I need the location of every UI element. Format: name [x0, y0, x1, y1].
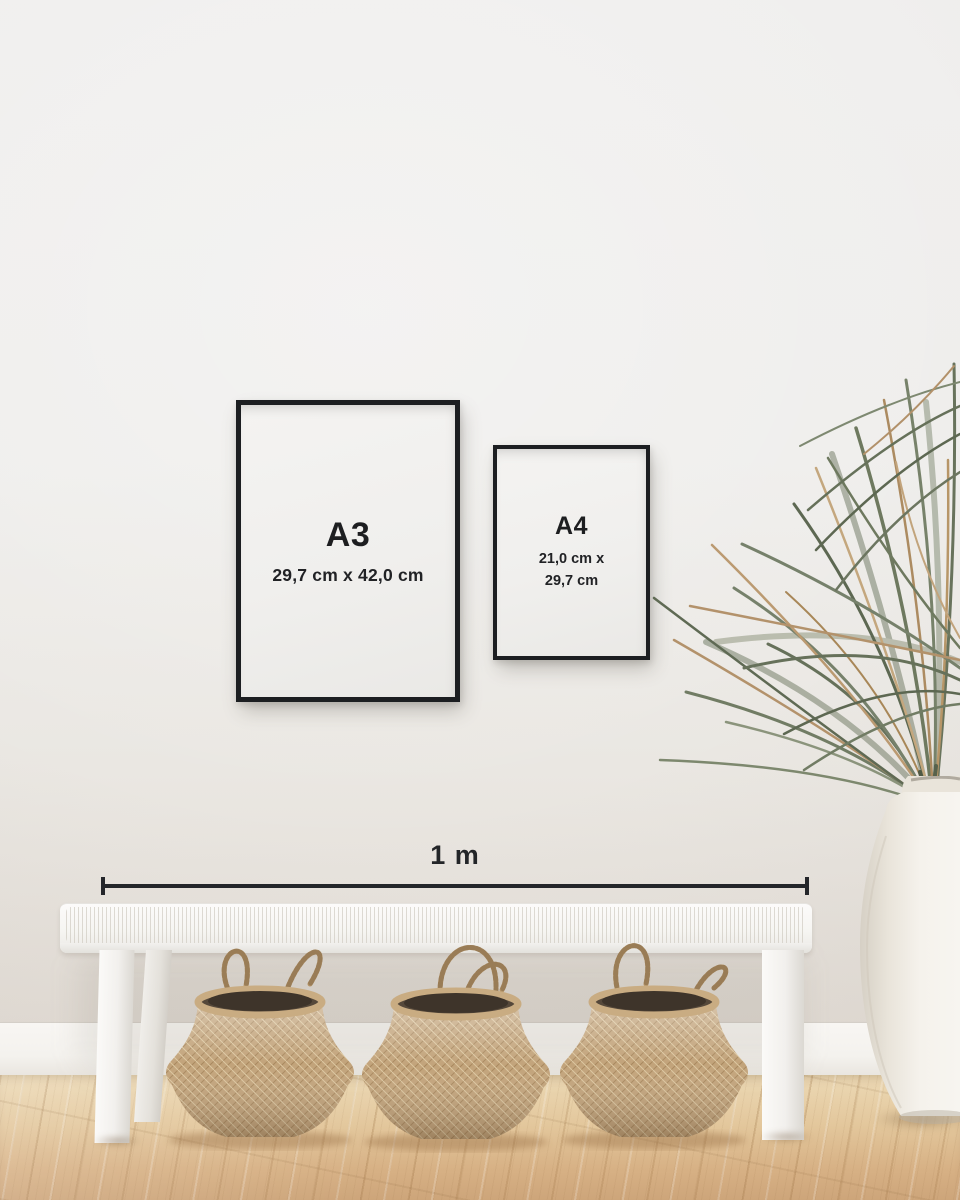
- white-urn-vase: [845, 776, 960, 1132]
- a3-size-dimensions: 29,7 cm x 42,0 cm: [272, 565, 423, 586]
- a4-size-dimensions: 21,0 cm x 29,7 cm: [539, 549, 604, 593]
- basket-3: [560, 946, 748, 1149]
- bench-leg-shadow-left: [82, 1132, 152, 1150]
- a4-size-dimensions-line2: 29,7 cm: [539, 571, 604, 593]
- seagrass-baskets: [150, 918, 762, 1158]
- vase-body: [860, 792, 960, 1116]
- scale-bar-left-tick: [101, 877, 105, 895]
- poster-size-mockup-scene: A3 29,7 cm x 42,0 cm A4 21,0 cm x 29,7 c…: [0, 0, 960, 1200]
- scale-bar-line: [102, 884, 808, 888]
- scale-bar-label: 1 m: [102, 840, 808, 871]
- bench-leg-right-front: [762, 950, 804, 1140]
- basket-2: [362, 947, 550, 1151]
- a4-size-dimensions-line1: 21,0 cm x: [539, 549, 604, 571]
- a4-size-label: A4: [555, 512, 588, 541]
- basket-1: [166, 951, 354, 1149]
- a3-poster-mat: A3 29,7 cm x 42,0 cm: [241, 405, 455, 697]
- scale-bar: 1 m: [102, 840, 808, 888]
- palm-plant: [596, 342, 960, 812]
- a3-poster-frame: A3 29,7 cm x 42,0 cm: [236, 400, 460, 702]
- a3-size-label: A3: [326, 516, 370, 555]
- palm-fronds: [654, 364, 960, 804]
- bench-leg-left-front: [94, 950, 134, 1143]
- scale-bar-right-tick: [805, 877, 809, 895]
